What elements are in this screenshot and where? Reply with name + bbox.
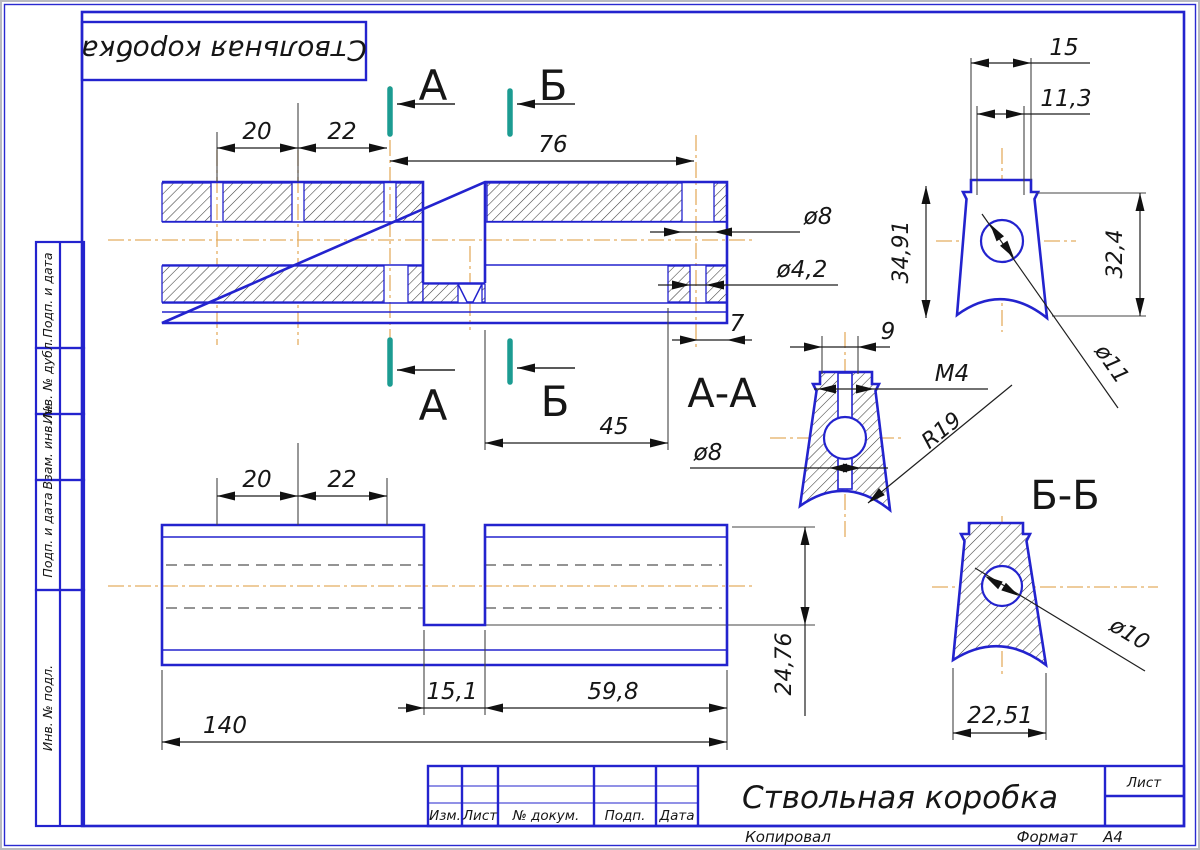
section-aa-label: А-А [687, 371, 757, 417]
dim-59-8: 59,8 [587, 679, 638, 705]
tb-col-dokum: № докум. [512, 808, 580, 824]
tb-part-name: Ствольная коробка [742, 780, 1058, 816]
footer-format-label: Формат [1017, 828, 1079, 846]
dim-7: 7 [730, 311, 745, 337]
dim-dia8-top: ø8 [803, 204, 833, 230]
tb-col-podp: Подп. [605, 808, 646, 824]
sidebar-label-inv-podl: Инв. № подл. [40, 665, 55, 751]
dim-32-4: 32,4 [1103, 230, 1128, 279]
aa-thread-slot [838, 373, 852, 419]
dim-22-51: 22,51 [967, 703, 1033, 729]
dim-140: 140 [203, 713, 247, 739]
tb-sheet-label: Лист [1126, 775, 1162, 791]
dim-15-1: 15,1 [426, 679, 477, 705]
dim-top-22: 22 [327, 119, 356, 145]
cut-mark-a-top: А [419, 61, 448, 110]
section-bb-label: Б-Б [1030, 473, 1099, 519]
bb-cross-hole [982, 566, 1022, 606]
dim-top-76: 76 [538, 132, 567, 158]
dim-9: 9 [881, 319, 896, 345]
stamp-part-title: Ствольная коробка [81, 34, 366, 67]
tb-col-data: Дата [659, 808, 695, 824]
dim-dia4-2: ø4,2 [776, 257, 828, 283]
front-cross-hole [981, 220, 1023, 262]
dim-45: 45 [599, 414, 628, 440]
cut-mark-b-bottom: Б [541, 377, 570, 426]
dim-24-76: 24,76 [772, 633, 797, 696]
dim-bot-22: 22 [327, 467, 356, 493]
sidebar-label-vzam-inv: Взам. инв. № [40, 405, 55, 490]
aa-lower-channel [838, 456, 852, 489]
aa-cross-hole [824, 417, 866, 459]
footer-copied: Копировал [745, 828, 831, 846]
dim-11-3: 11,3 [1040, 86, 1091, 112]
dim-bot-20: 20 [242, 467, 271, 493]
dim-15: 15 [1049, 35, 1078, 61]
cut-mark-b-top: Б [539, 61, 568, 110]
drawing-canvas: Ствольная коробка Подп. и дата Инв. № ду… [0, 0, 1200, 850]
tb-col-list: Лист [462, 808, 498, 824]
dim-34-91: 34,91 [889, 221, 914, 284]
tb-col-izm: Изм. [429, 808, 461, 824]
cut-mark-a-bottom: А [419, 381, 448, 430]
front-profile-view [957, 180, 1047, 318]
sidebar-label-podp-data-2: Подп. и дата [40, 492, 55, 577]
dim-top-20: 20 [242, 119, 271, 145]
footer-format-value: A4 [1102, 828, 1123, 846]
sidebar-label-podp-data-1: Подп. и дата [40, 252, 55, 337]
dim-m4: M4 [935, 361, 969, 387]
dim-dia8-aa: ø8 [693, 440, 723, 466]
